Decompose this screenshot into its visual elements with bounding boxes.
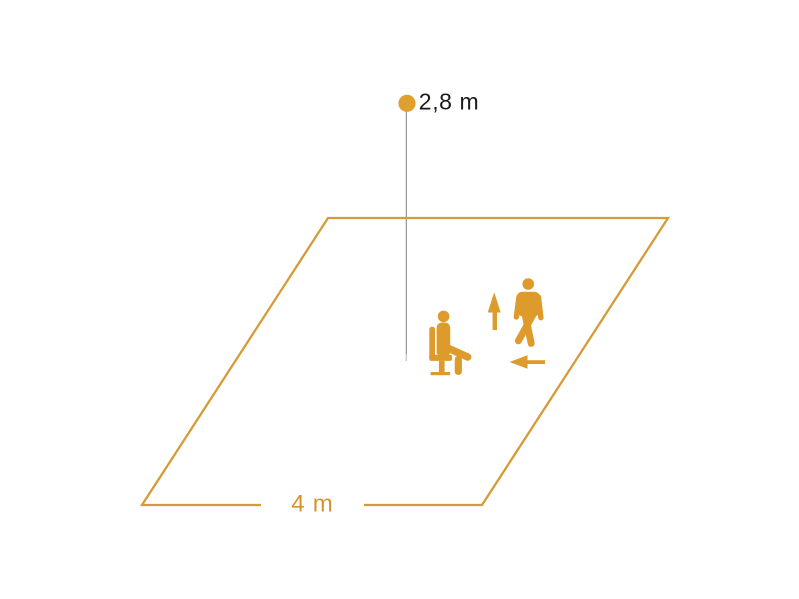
- svg-text:4 m: 4 m: [291, 491, 333, 518]
- svg-text:2,8 m: 2,8 m: [419, 89, 480, 115]
